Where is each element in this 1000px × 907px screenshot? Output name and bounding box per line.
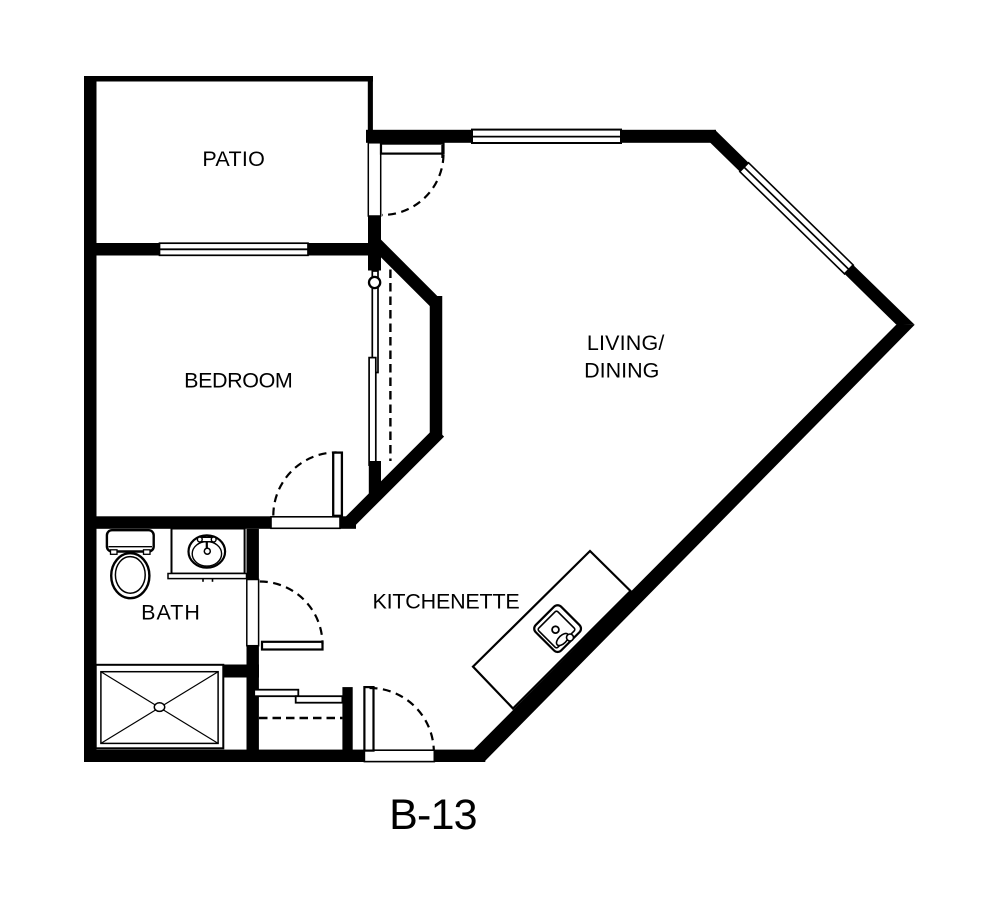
svg-text:BEDROOM: BEDROOM (184, 369, 292, 393)
svg-text:BATH: BATH (141, 601, 201, 625)
svg-text:B-13: B-13 (389, 791, 477, 839)
svg-text:PATIO: PATIO (202, 147, 265, 171)
svg-text:LIVING/: LIVING/ (587, 331, 665, 355)
svg-text:KITCHENETTE: KITCHENETTE (372, 590, 519, 614)
svg-text:DINING: DINING (584, 359, 659, 383)
